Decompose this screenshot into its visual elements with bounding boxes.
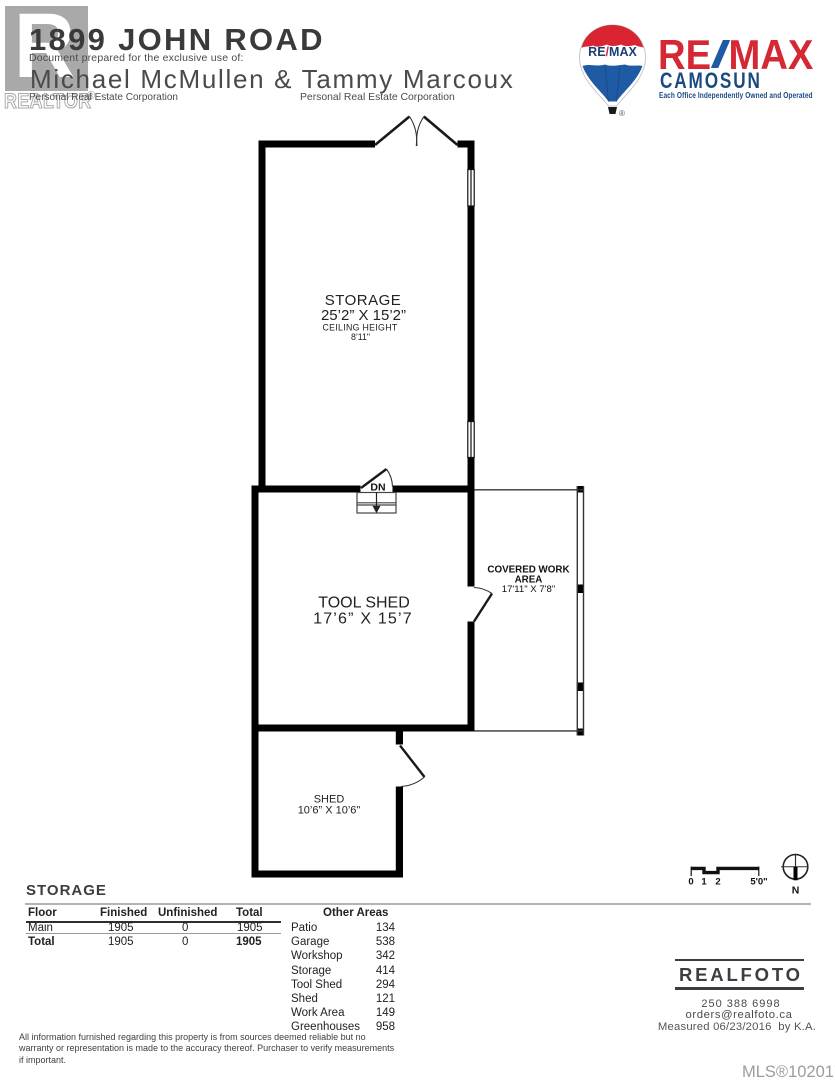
- svg-text:RE/MAX: RE/MAX: [588, 45, 637, 59]
- svg-text:17'11" X 7'8": 17'11" X 7'8": [502, 584, 556, 595]
- svg-text:CEILING HEIGHT: CEILING HEIGHT: [322, 323, 397, 333]
- svg-text:10’6” X 10’6": 10’6” X 10’6": [298, 804, 361, 816]
- svg-text:17’6” X 15’7: 17’6” X 15’7: [313, 611, 413, 628]
- svg-text:DN: DN: [370, 482, 385, 494]
- svg-text:2: 2: [715, 877, 720, 888]
- svg-text:®: ®: [619, 109, 625, 118]
- svg-text:N: N: [792, 885, 800, 897]
- svg-text:25’2” X 15’2”: 25’2” X 15’2”: [321, 307, 406, 324]
- svg-text:0: 0: [688, 877, 693, 888]
- svg-text:8’11": 8’11": [351, 332, 370, 342]
- svg-text:1: 1: [701, 877, 707, 888]
- svg-text:5'0": 5'0": [750, 877, 767, 888]
- svg-text:TOOL SHED: TOOL SHED: [318, 595, 410, 612]
